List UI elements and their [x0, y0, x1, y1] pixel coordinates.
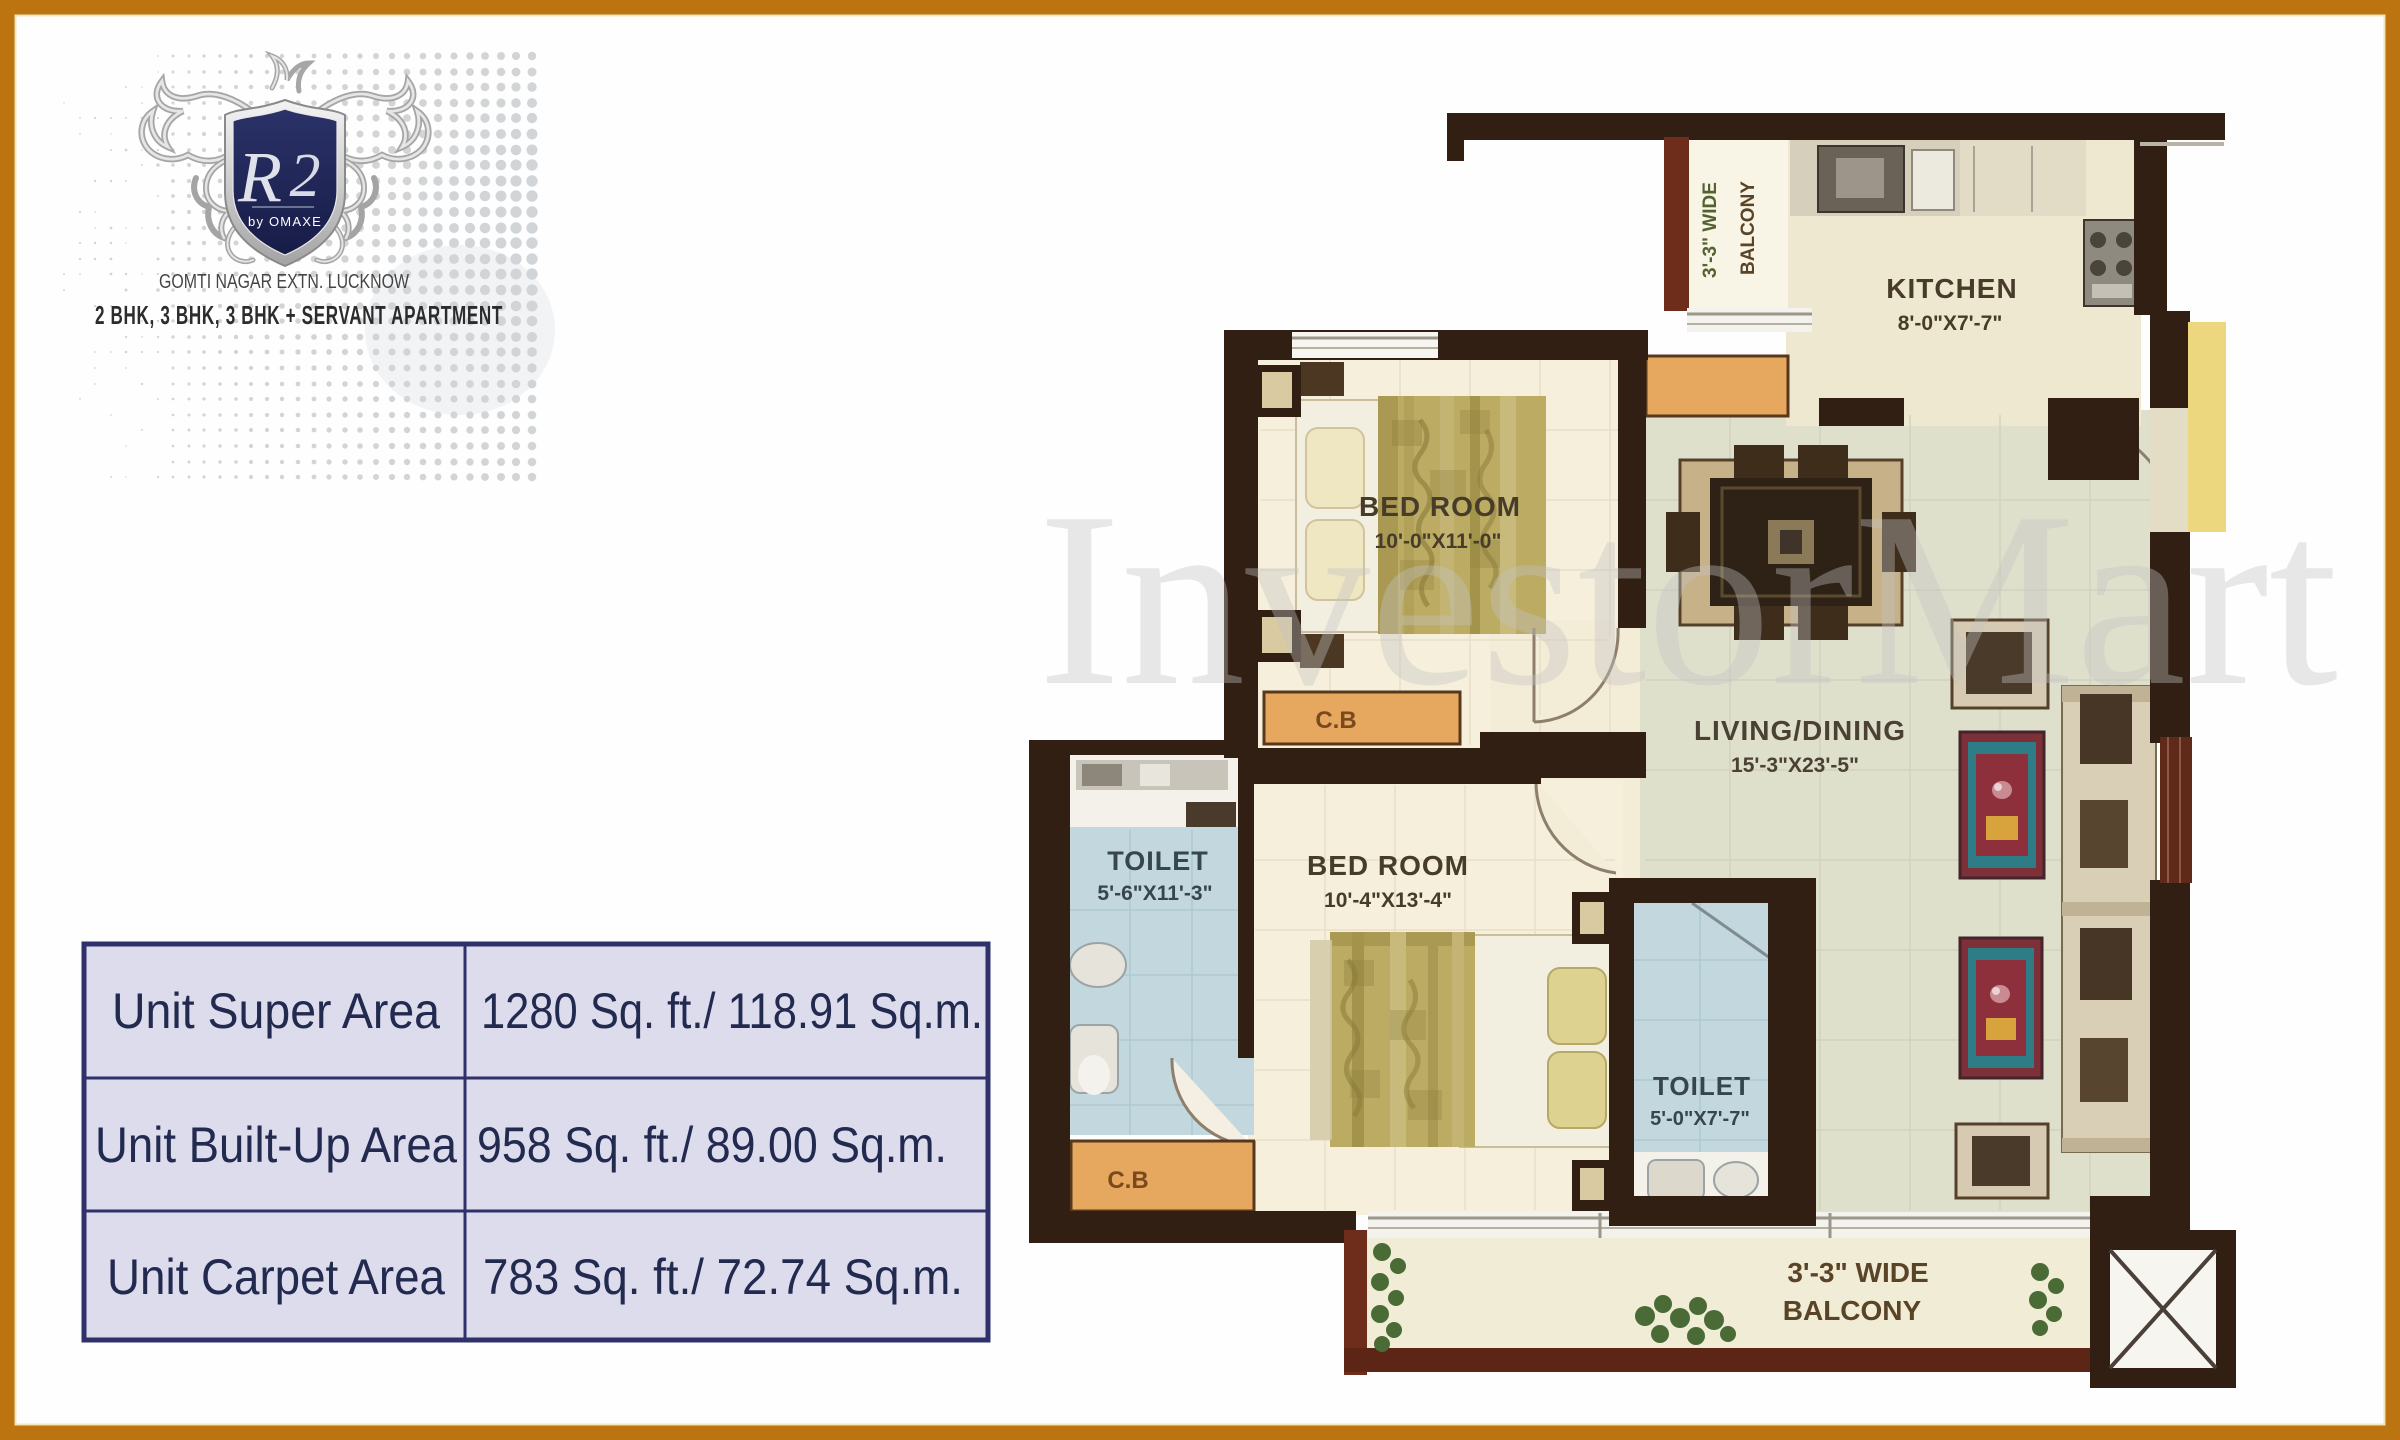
svg-text:958 Sq. ft./ 89.00 Sq.m.: 958 Sq. ft./ 89.00 Sq.m.	[477, 1117, 947, 1173]
svg-text:TOILET: TOILET	[1653, 1071, 1751, 1101]
svg-text:15'-3"X23'-5": 15'-3"X23'-5"	[1731, 754, 1859, 777]
svg-text:Unit Super Area: Unit Super Area	[112, 983, 440, 1039]
svg-text:BALCONY: BALCONY	[1738, 181, 1759, 275]
svg-text:5'-6"X11'-3": 5'-6"X11'-3"	[1097, 882, 1212, 905]
svg-text:Unit Built-Up Area: Unit Built-Up Area	[95, 1117, 457, 1173]
svg-text:GOMTI NAGAR EXTN. LUCKNOW: GOMTI NAGAR EXTN. LUCKNOW	[159, 271, 409, 293]
svg-text:10'-4"X13'-4": 10'-4"X13'-4"	[1324, 889, 1452, 912]
svg-text:BED ROOM: BED ROOM	[1307, 850, 1469, 881]
svg-text:TOILET: TOILET	[1107, 846, 1209, 876]
svg-text:InvestorMart: InvestorMart	[1038, 461, 2338, 738]
svg-text:by OMAXE: by OMAXE	[248, 214, 322, 229]
svg-text:5'-0"X7'-7": 5'-0"X7'-7"	[1650, 1108, 1750, 1130]
svg-text:2: 2	[290, 142, 321, 210]
svg-text:783 Sq. ft./ 72.74 Sq.m.: 783 Sq. ft./ 72.74 Sq.m.	[483, 1249, 963, 1305]
svg-text:KITCHEN: KITCHEN	[1886, 273, 2017, 304]
svg-text:3'-3" WIDE: 3'-3" WIDE	[1700, 182, 1721, 278]
svg-text:2 BHK, 3 BHK, 3 BHK + SERVANT: 2 BHK, 3 BHK, 3 BHK + SERVANT APARTMENT	[95, 300, 503, 330]
svg-text:3'-3" WIDE: 3'-3" WIDE	[1787, 1257, 1928, 1288]
svg-text:BALCONY: BALCONY	[1783, 1295, 1922, 1326]
svg-text:R: R	[237, 137, 282, 217]
svg-text:8'-0"X7'-7": 8'-0"X7'-7"	[1898, 312, 2003, 335]
svg-text:Unit Carpet Area: Unit Carpet Area	[107, 1249, 445, 1305]
svg-text:C.B: C.B	[1107, 1167, 1148, 1194]
svg-text:1280 Sq. ft./ 118.91 Sq.m.: 1280 Sq. ft./ 118.91 Sq.m.	[481, 983, 983, 1039]
